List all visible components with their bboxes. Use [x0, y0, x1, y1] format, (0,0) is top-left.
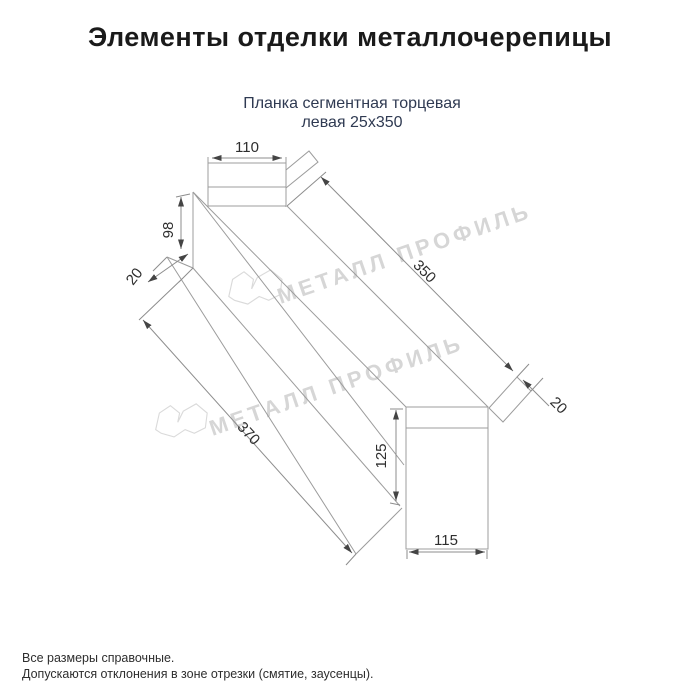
top-end-face	[208, 157, 286, 207]
dim-line-right-hem	[523, 380, 549, 406]
dim-top-width-label: 110	[235, 139, 259, 156]
dim-end-width-label: 115	[434, 532, 458, 549]
catalog-drawing-page: Элементы отделки металлочерепицы Планка …	[0, 0, 700, 700]
dim-left-hem-label: 20	[123, 265, 147, 289]
footnote-line2: Допускаются отклонения в зоне отрезки (с…	[22, 666, 622, 682]
dim-left-height-label: 98	[160, 222, 177, 239]
metall-profil-logo-watermark	[156, 404, 208, 437]
part-outline	[167, 151, 531, 554]
bottom-end-face	[406, 407, 488, 549]
footnote-line1: Все размеры справочные.	[22, 650, 622, 666]
bottom-hem-fold	[489, 377, 531, 422]
dim-right-hem-label: 20	[546, 394, 570, 418]
dimension-labels: 110 98 20 350 20 370 125 115	[123, 139, 571, 549]
top-hem-fold	[286, 151, 318, 188]
dim-end-height-label: 125	[373, 443, 390, 468]
footnotes: Все размеры справочные. Допускаются откл…	[22, 650, 622, 682]
watermark-layer: МЕТАЛЛ ПРОФИЛЬ МЕТАЛЛ ПРОФИЛЬ	[156, 198, 535, 441]
technical-drawing: МЕТАЛЛ ПРОФИЛЬ МЕТАЛЛ ПРОФИЛЬ	[0, 0, 700, 700]
watermark-text-1: МЕТАЛЛ ПРОФИЛЬ	[274, 198, 535, 309]
